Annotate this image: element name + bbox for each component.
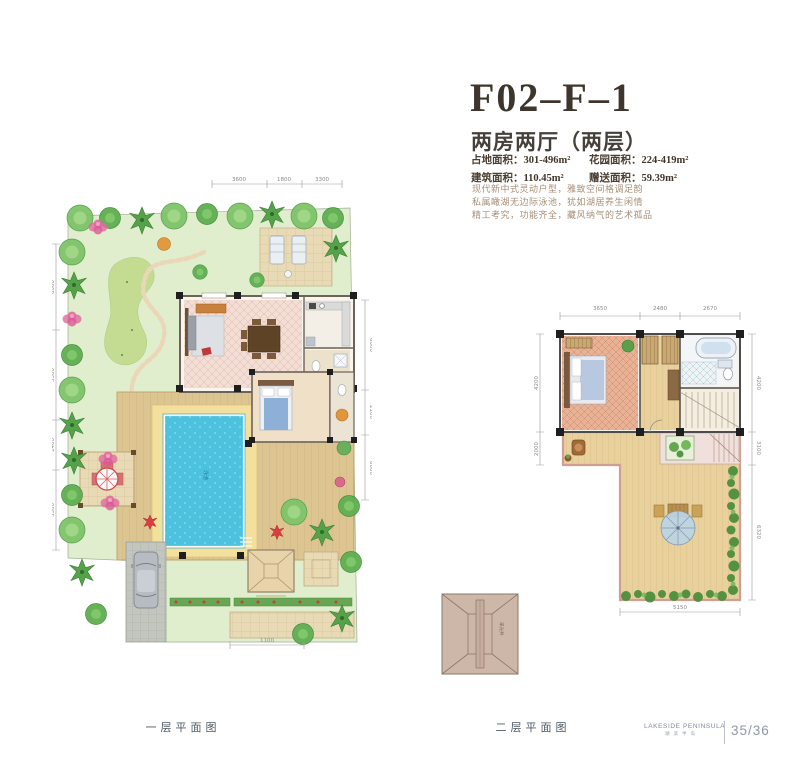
upper-rooms — [556, 330, 744, 436]
svg-text:6000: 6000 — [368, 338, 372, 352]
svg-text:6000: 6000 — [368, 461, 372, 475]
first-floor-plan: 泳池 — [52, 170, 372, 666]
svg-text:4200: 4200 — [755, 376, 761, 390]
bed — [258, 380, 294, 430]
caption-second-floor: 二层平面图 — [478, 719, 588, 735]
roof-terrace — [563, 432, 740, 603]
area-stats: 占地面积：301-496m² 花园面积：224-419m² 建筑面积：110.4… — [471, 152, 721, 185]
marketing-description: 现代新中式灵动户型，雅致空间格调足韵 私属瞰湖无边际泳池，犹如湖居养生闲情 精工… — [472, 183, 653, 222]
stat-land: 占地面积：301-496m² — [471, 152, 589, 167]
bed — [564, 352, 606, 408]
flower-beds — [170, 598, 352, 606]
garden-patio — [260, 228, 332, 286]
brand-name: LAKESIDE PENINSULA — [644, 723, 720, 730]
car — [131, 552, 161, 608]
svg-text:1400: 1400 — [52, 438, 56, 452]
pool-label: 泳池 — [202, 470, 209, 480]
svg-text:3500: 3500 — [52, 368, 56, 382]
footer-divider — [724, 721, 725, 744]
page-number: 35/36 — [731, 723, 770, 738]
svg-text:6000: 6000 — [52, 280, 56, 294]
svg-text:3600: 3600 — [232, 177, 246, 183]
svg-text:6320: 6320 — [755, 525, 761, 539]
roof-detail-plan: 采光井 — [438, 590, 522, 678]
driveway — [126, 542, 166, 642]
svg-text:3300: 3300 — [315, 177, 329, 183]
svg-text:3650: 3650 — [593, 306, 607, 312]
brand-logo: LAKESIDE PENINSULA 湖滨半岛 — [644, 723, 720, 737]
svg-text:1100: 1100 — [260, 638, 274, 644]
caption-first-floor: 一层平面图 — [128, 719, 238, 735]
svg-text:2480: 2480 — [653, 306, 667, 312]
bedroom-block — [249, 369, 357, 443]
bedroom-plant — [622, 340, 634, 352]
bathtub — [696, 338, 736, 358]
pool-area: 泳池 — [152, 405, 257, 559]
svg-text:5500: 5500 — [52, 503, 56, 517]
svg-text:2670: 2670 — [703, 306, 717, 312]
brand-name-cn: 湖滨半岛 — [644, 731, 720, 737]
page-title: F02–F–1 — [470, 74, 633, 121]
roof-label: 采光井 — [498, 622, 505, 636]
svg-text:2100: 2100 — [368, 405, 372, 419]
pattern-tile — [304, 552, 338, 586]
svg-text:1800: 1800 — [277, 177, 291, 183]
planter — [666, 436, 694, 460]
svg-text:2000: 2000 — [534, 442, 540, 456]
svg-text:4200: 4200 — [534, 376, 540, 390]
second-floor-plan: 3650 2480 2670 4200 2000 4200 3100 6320 … — [518, 296, 768, 626]
stat-garden: 花园面积：224-419m² — [589, 152, 721, 167]
pool — [164, 415, 244, 547]
brochure-page: F02–F–1 两房两厅（两层） 占地面积：301-496m² 花园面积：224… — [0, 0, 800, 764]
bedroom-dresser — [566, 338, 592, 348]
svg-text:5150: 5150 — [673, 605, 687, 611]
svg-text:3100: 3100 — [755, 441, 761, 455]
